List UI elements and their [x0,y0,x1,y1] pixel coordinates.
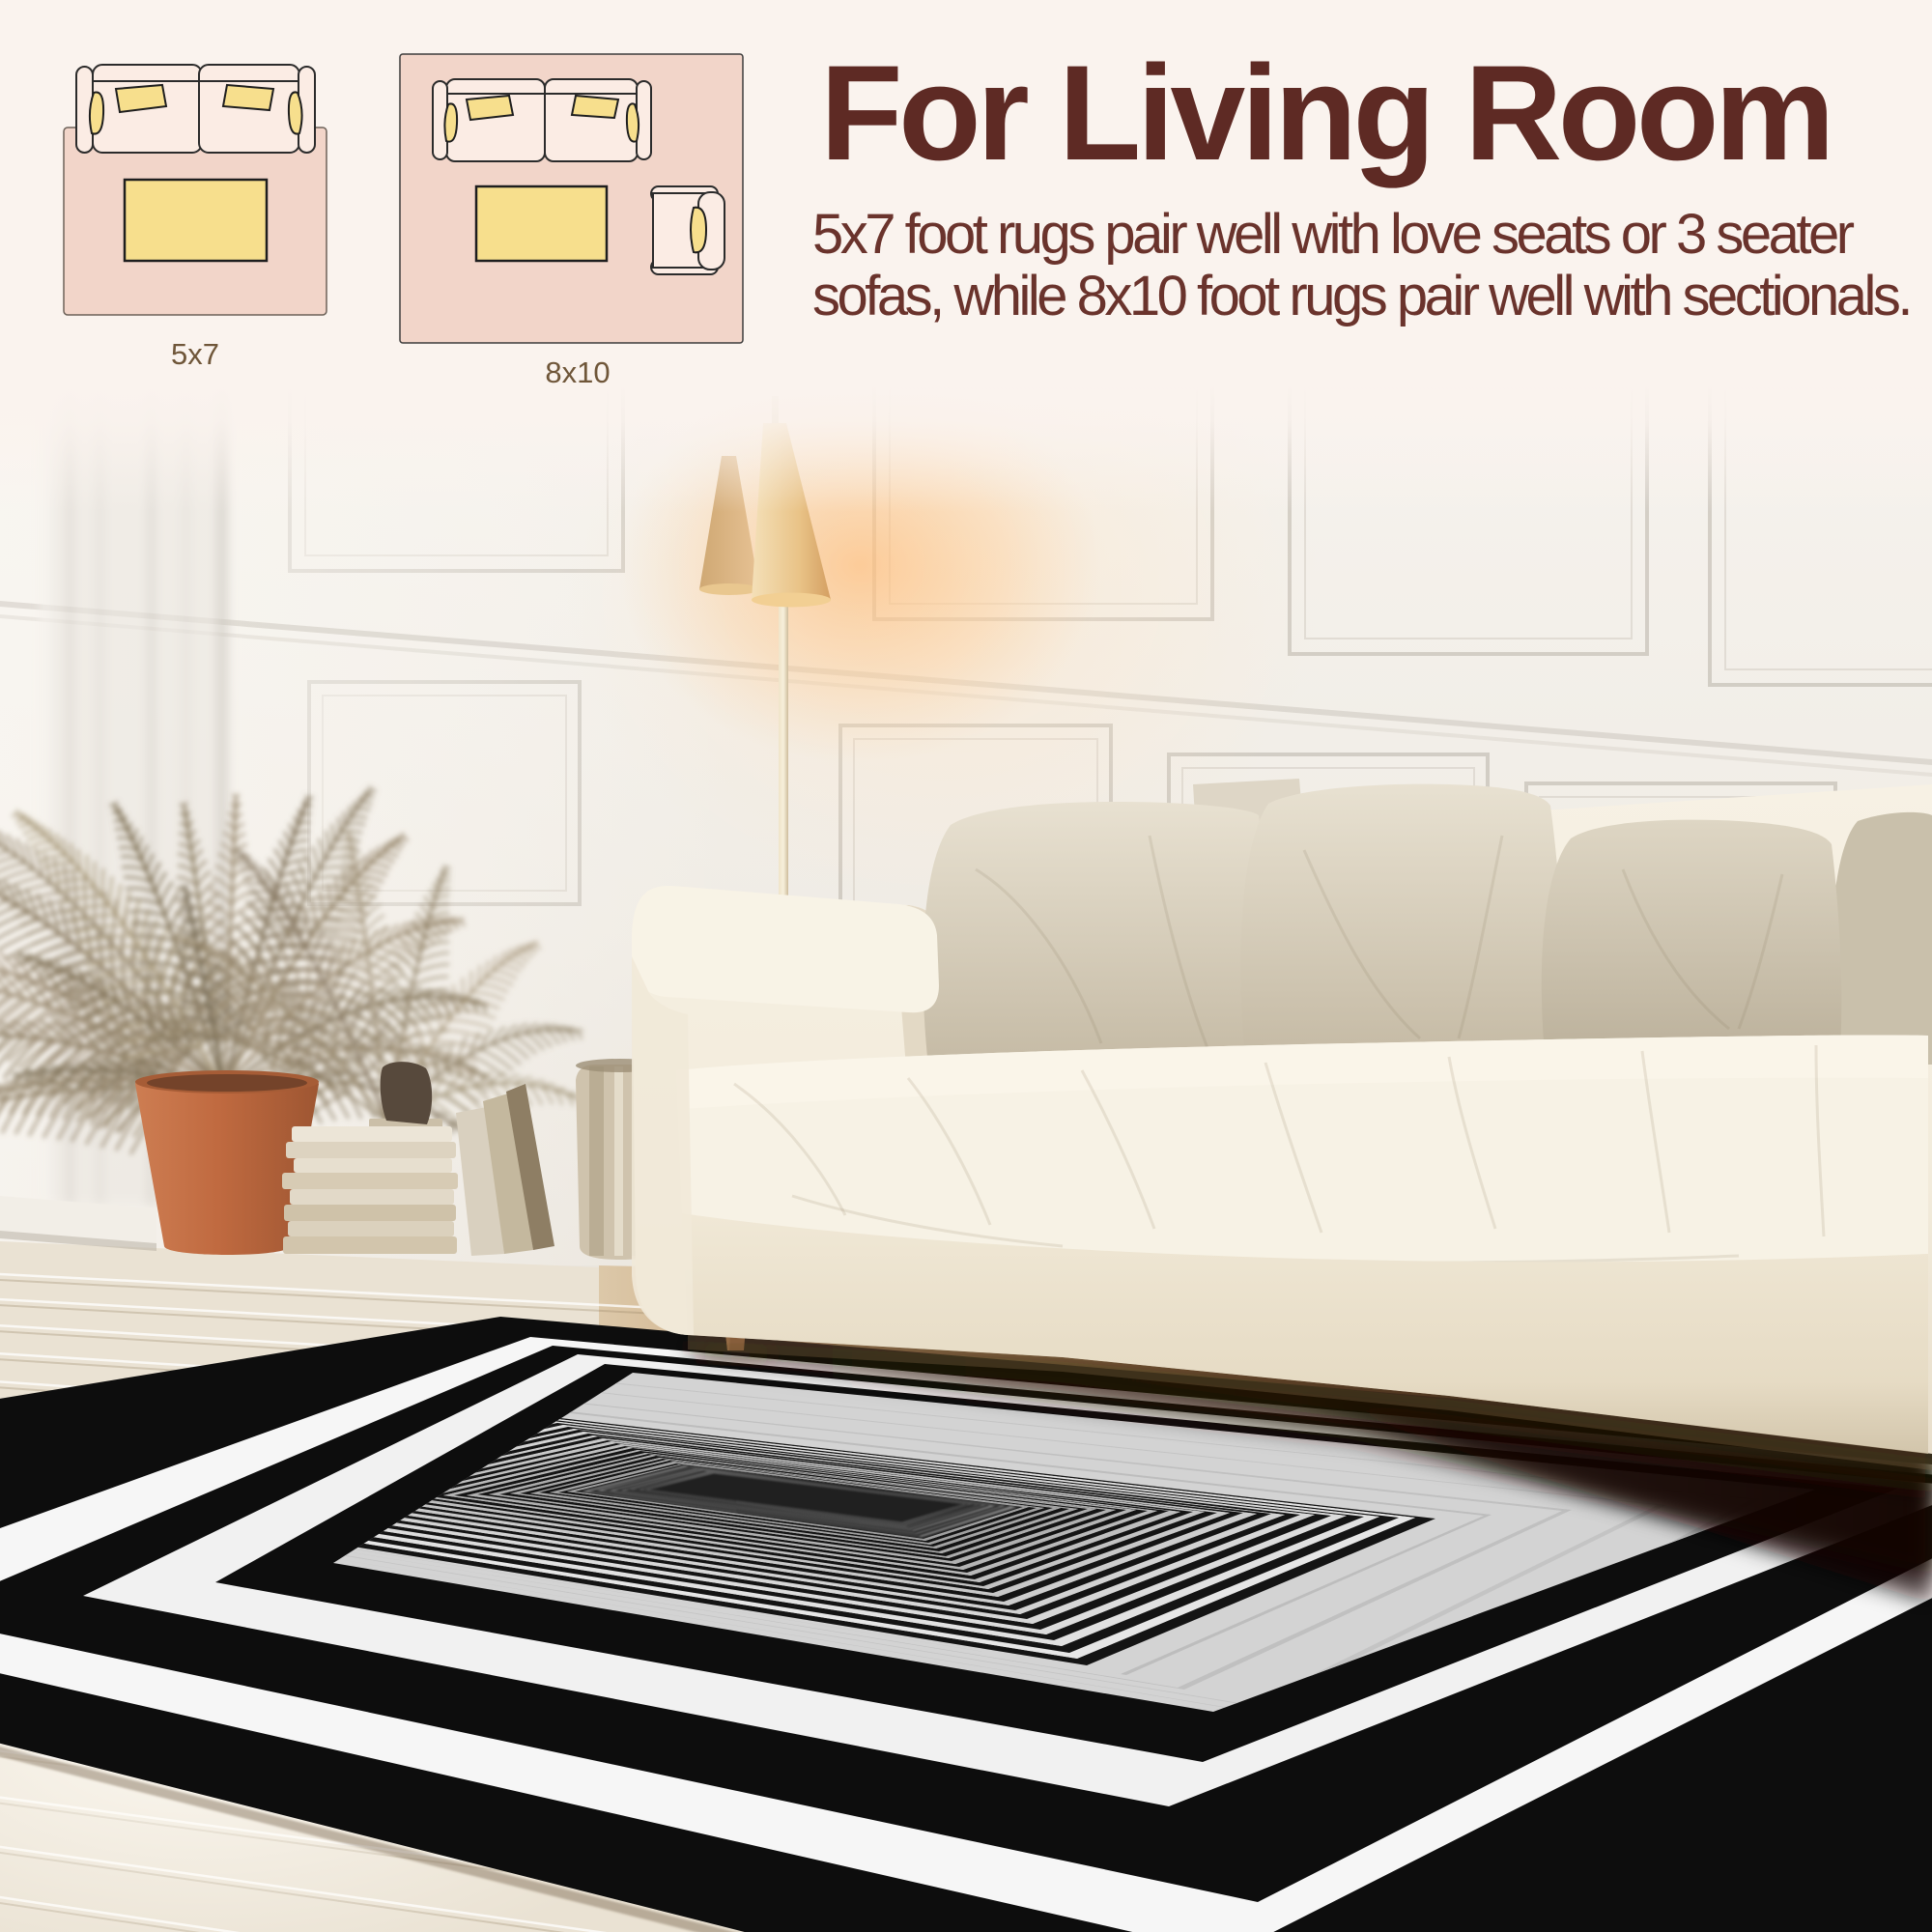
svg-text:8x10: 8x10 [545,355,610,389]
svg-text:5x7: 5x7 [171,337,219,371]
